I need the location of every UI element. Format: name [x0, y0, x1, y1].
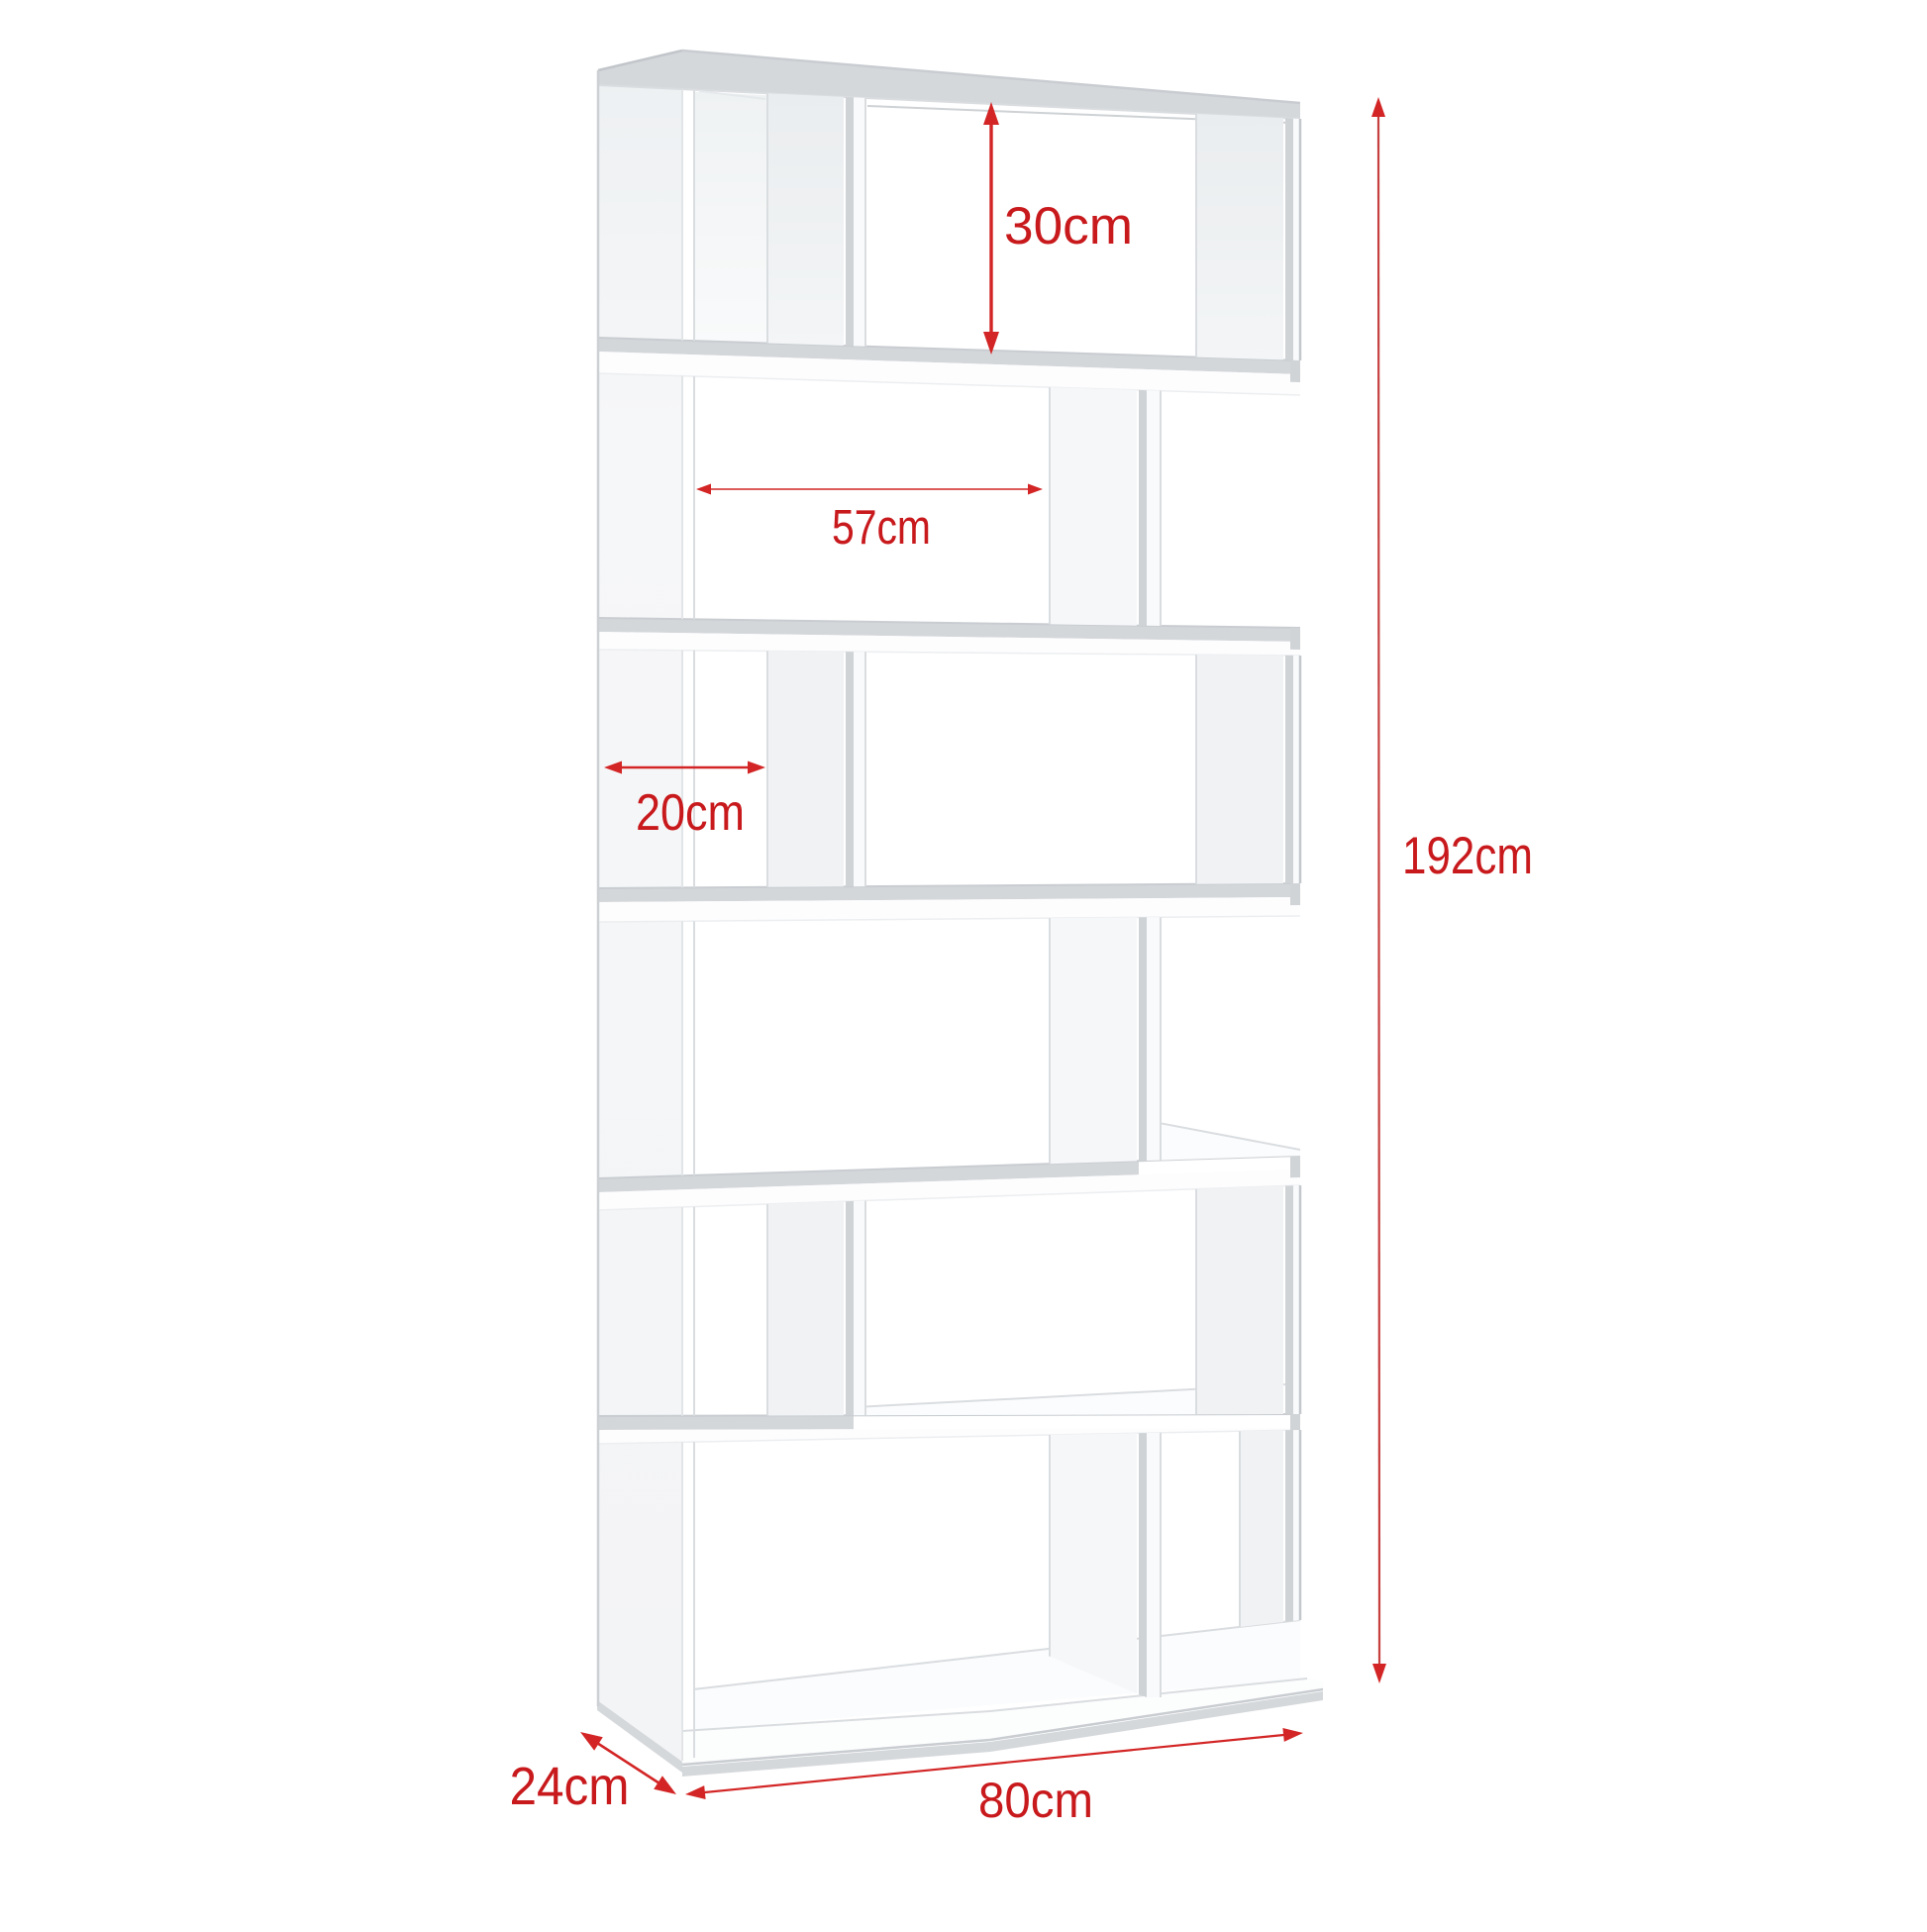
svg-text:192cm: 192cm — [1402, 827, 1533, 885]
svg-text:30cm: 30cm — [1004, 197, 1133, 255]
svg-text:20cm: 20cm — [636, 784, 745, 842]
svg-text:80cm: 80cm — [978, 1773, 1093, 1828]
svg-text:57cm: 57cm — [832, 501, 931, 555]
svg-text:24cm: 24cm — [510, 1757, 630, 1816]
